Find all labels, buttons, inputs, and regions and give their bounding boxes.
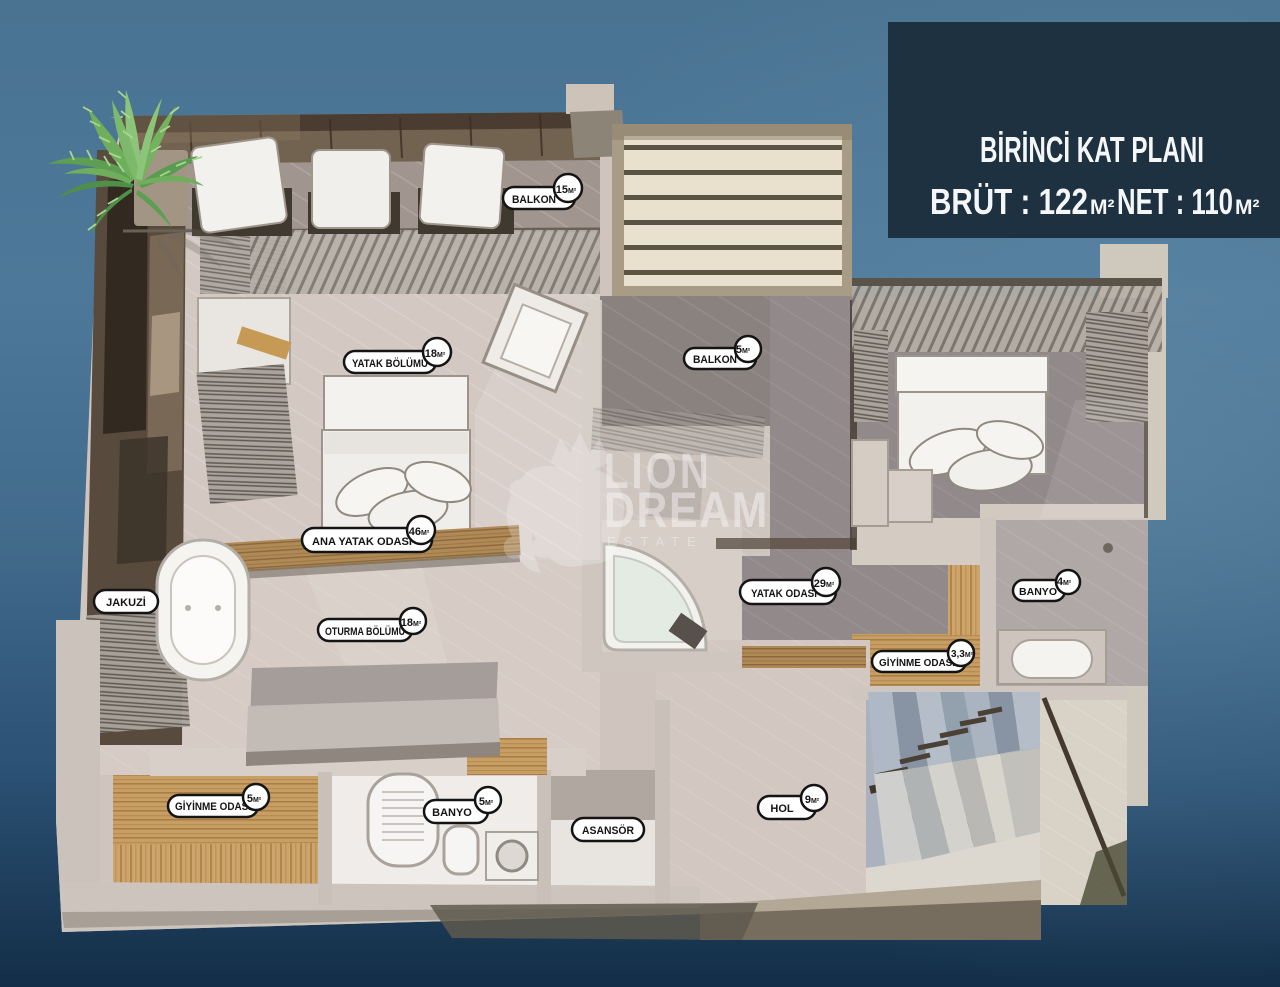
svg-text:DREAM: DREAM (604, 482, 769, 538)
svg-text:M²: M² (1090, 196, 1115, 219)
svg-text:JAKUZİ: JAKUZİ (106, 596, 146, 609)
svg-text:M²: M² (1235, 196, 1260, 219)
svg-text:BALKON: BALKON (693, 354, 737, 366)
svg-text:BANYO: BANYO (432, 807, 472, 819)
svg-text:ASANSÖR: ASANSÖR (582, 824, 634, 837)
svg-text:ANA YATAK ODASI: ANA YATAK ODASI (312, 536, 412, 548)
svg-text:BİRİNCİ KAT PLANI: BİRİNCİ KAT PLANI (980, 129, 1204, 170)
svg-text:NET : 110: NET : 110 (1117, 181, 1233, 222)
svg-text:OTURMA BÖLÜMÜ: OTURMA BÖLÜMÜ (325, 625, 405, 638)
svg-text:BALKON: BALKON (512, 194, 556, 206)
svg-text:GİYİNME ODASI: GİYİNME ODASI (879, 656, 955, 669)
svg-text:BRÜT : 122: BRÜT : 122 (930, 181, 1088, 222)
svg-text:YATAK BÖLÜMÜ: YATAK BÖLÜMÜ (352, 357, 428, 370)
svg-text:GİYİNME ODASI: GİYİNME ODASI (175, 800, 251, 813)
svg-text:HOL: HOL (770, 803, 794, 815)
svg-text:ESTATE: ESTATE (607, 534, 704, 549)
svg-text:BANYO: BANYO (1019, 586, 1057, 598)
svg-text:YATAK ODASI: YATAK ODASI (751, 588, 817, 600)
